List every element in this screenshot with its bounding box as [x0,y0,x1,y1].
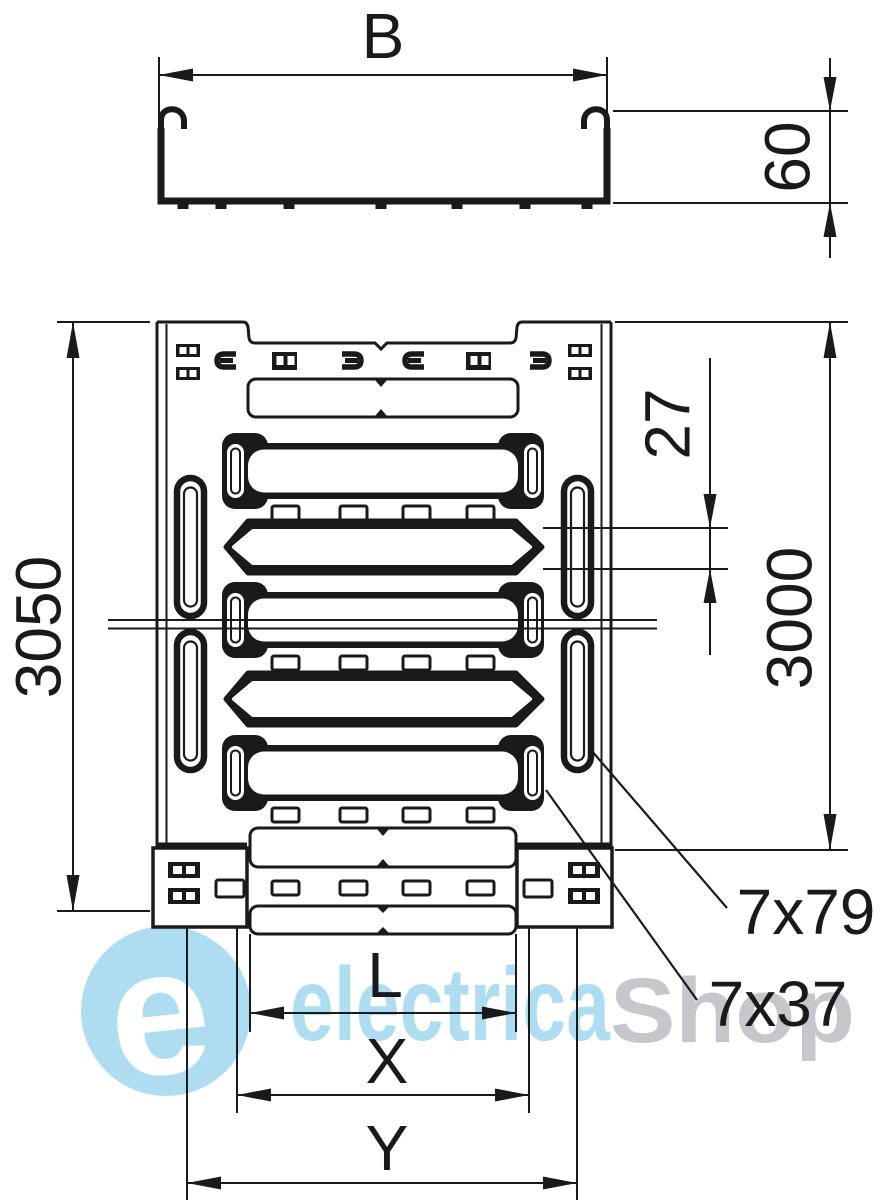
corner-punching [568,367,592,380]
slot-row-rects [272,506,494,520]
slot-row-rects [272,656,494,670]
brand-text-electrica: electrica [290,947,611,1063]
end-slot [248,379,518,417]
dimension-b: B [159,0,607,120]
label-x: X [366,1025,409,1097]
label-y: Y [366,1112,409,1184]
dimension-3050: 3050 [2,322,150,911]
slot-row-rects [272,808,494,822]
dimension-60: 60 [613,58,848,258]
label-3000: 3000 [753,547,825,689]
corner-punching [176,367,200,380]
label-7x79: 7x79 [737,876,876,948]
side-rail-slot [564,632,591,770]
label-7x37: 7x37 [709,968,848,1040]
slot-row-pointed [226,521,542,573]
technical-drawing-sheet: e electrica Shop B 6 [0,0,884,1200]
coupler-zone [153,828,612,934]
cross-section-view [158,109,611,209]
label-27: 27 [631,388,703,459]
label-3050: 3050 [2,556,74,698]
slot-row-dogbone [222,433,544,509]
side-rail-slot [564,478,591,616]
side-rail-slot [177,632,204,770]
slot-row-dogbone [222,735,544,811]
side-rail-slot [177,478,204,616]
clip-cutouts [217,352,549,370]
corner-punching [176,344,200,357]
corner-punching [568,344,592,357]
label-l: L [367,939,403,1011]
dimension-y: Y [187,1112,577,1190]
brand-logo-letter: e [99,907,220,1117]
label-b: B [362,0,405,72]
label-60: 60 [751,121,823,192]
tray-feet [178,204,593,209]
slot-row-pointed [226,673,542,725]
